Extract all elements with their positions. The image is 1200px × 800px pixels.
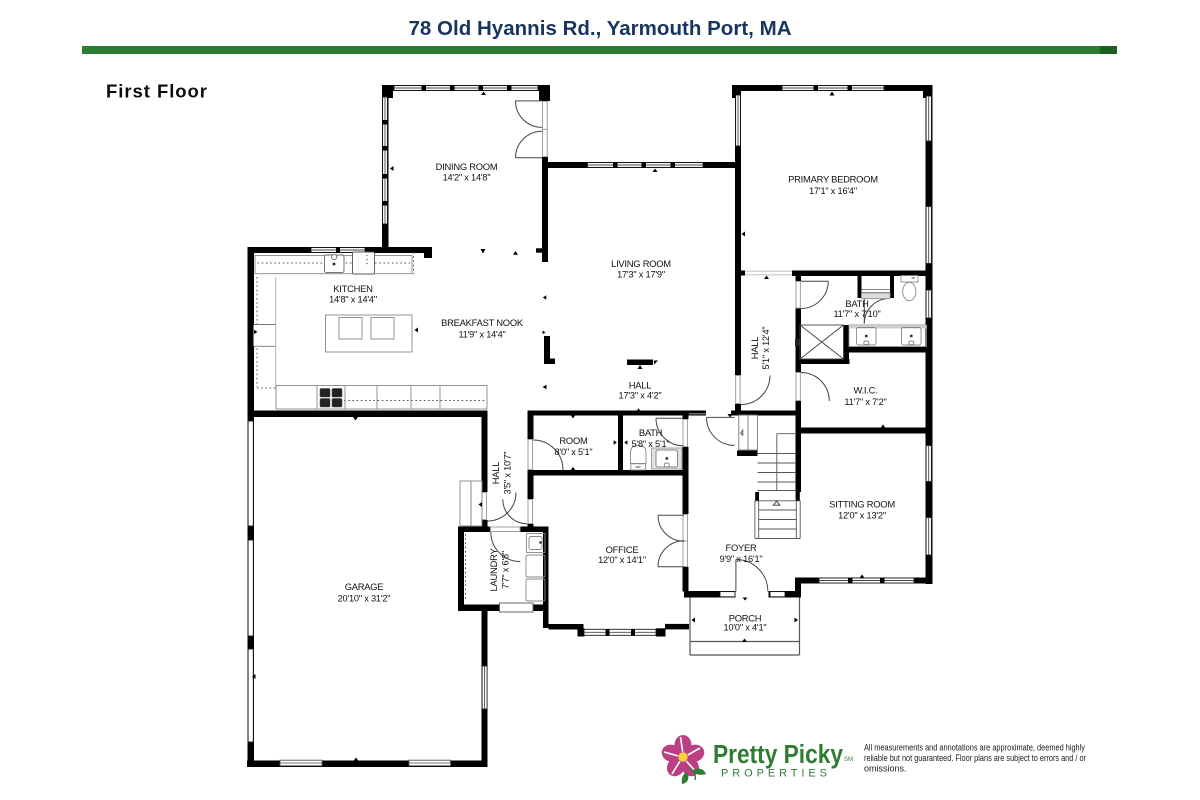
- svg-text:ROOM: ROOM: [559, 435, 588, 446]
- svg-text:9'9" x 16'1": 9'9" x 16'1": [720, 554, 763, 564]
- svg-text:Pretty Picky: Pretty Picky: [713, 741, 844, 769]
- svg-text:All measurements and annotatio: All measurements and annotations are app…: [864, 743, 1085, 753]
- svg-text:SM: SM: [844, 757, 853, 763]
- svg-text:LAUNDRY: LAUNDRY: [488, 548, 499, 592]
- svg-text:BREAKFAST NOOK: BREAKFAST NOOK: [441, 317, 524, 328]
- svg-text:78 Old Hyannis Rd., Yarmouth P: 78 Old Hyannis Rd., Yarmouth Port, MA: [409, 17, 792, 40]
- svg-text:8'0" x 5'1": 8'0" x 5'1": [555, 447, 593, 457]
- svg-text:PRIMARY BEDROOM: PRIMARY BEDROOM: [788, 174, 878, 185]
- svg-text:SITTING ROOM: SITTING ROOM: [829, 499, 895, 510]
- svg-text:11'9" x 14'4": 11'9" x 14'4": [458, 330, 505, 340]
- svg-text:DINING ROOM: DINING ROOM: [436, 161, 498, 172]
- svg-text:FOYER: FOYER: [725, 542, 757, 553]
- svg-text:LIVING ROOM: LIVING ROOM: [611, 258, 671, 269]
- svg-text:BATH: BATH: [845, 298, 868, 309]
- svg-text:11'7" x 7'2": 11'7" x 7'2": [844, 397, 886, 407]
- svg-text:reliable but not guaranteed. F: reliable but not guaranteed. Floor plans…: [864, 753, 1086, 763]
- svg-text:17'1" x 16'4": 17'1" x 16'4": [809, 186, 857, 196]
- svg-text:17'3" x 4'2": 17'3" x 4'2": [619, 391, 662, 401]
- svg-text:First Floor: First Floor: [106, 81, 207, 102]
- svg-text:BATH: BATH: [639, 427, 662, 438]
- svg-text:14'2" x 14'8": 14'2" x 14'8": [443, 172, 491, 182]
- svg-text:omissions.: omissions.: [864, 764, 907, 774]
- svg-text:5'8" x 5'1": 5'8" x 5'1": [632, 439, 670, 449]
- svg-text:12'0" x 14'1": 12'0" x 14'1": [598, 555, 646, 565]
- svg-text:20'10" x 31'2": 20'10" x 31'2": [338, 594, 391, 604]
- svg-text:W.I.C.: W.I.C.: [853, 385, 877, 396]
- svg-text:PROPERTIES: PROPERTIES: [721, 768, 832, 780]
- svg-text:OFFICE: OFFICE: [606, 544, 639, 555]
- svg-text:14'8" x 14'4": 14'8" x 14'4": [329, 295, 377, 305]
- svg-text:HALL: HALL: [629, 379, 651, 390]
- svg-text:11'7" x 7'10": 11'7" x 7'10": [833, 309, 880, 319]
- svg-text:HALL: HALL: [749, 337, 760, 359]
- svg-text:17'3" x 17'9": 17'3" x 17'9": [617, 270, 665, 280]
- svg-text:5'1" x 12'4": 5'1" x 12'4": [761, 327, 771, 370]
- svg-text:HALL: HALL: [490, 462, 501, 484]
- svg-text:7'7" x 6'8": 7'7" x 6'8": [501, 551, 511, 589]
- svg-text:KITCHEN: KITCHEN: [333, 283, 372, 294]
- svg-text:3'5" x 10'7": 3'5" x 10'7": [503, 452, 513, 495]
- svg-text:10'0" x 4'1": 10'0" x 4'1": [724, 623, 767, 633]
- svg-text:GARAGE: GARAGE: [345, 581, 384, 592]
- svg-text:12'0" x 13'2": 12'0" x 13'2": [838, 510, 886, 520]
